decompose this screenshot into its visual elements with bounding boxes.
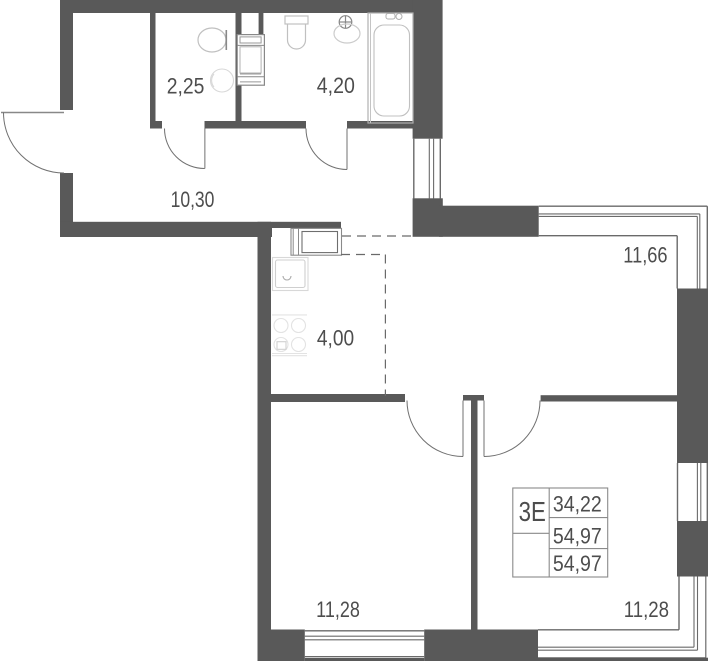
svg-text:11,28: 11,28 — [316, 598, 360, 622]
svg-text:11,66: 11,66 — [623, 243, 667, 268]
svg-text:54,97: 54,97 — [553, 524, 602, 549]
svg-text:3E: 3E — [519, 497, 546, 528]
svg-text:4,20: 4,20 — [317, 74, 355, 99]
svg-text:2,25: 2,25 — [167, 74, 205, 99]
svg-text:54,97: 54,97 — [553, 552, 602, 577]
svg-text:10,30: 10,30 — [171, 188, 215, 213]
svg-text:34,22: 34,22 — [553, 492, 602, 517]
svg-text:4,00: 4,00 — [317, 326, 354, 351]
svg-text:11,28: 11,28 — [624, 598, 669, 623]
